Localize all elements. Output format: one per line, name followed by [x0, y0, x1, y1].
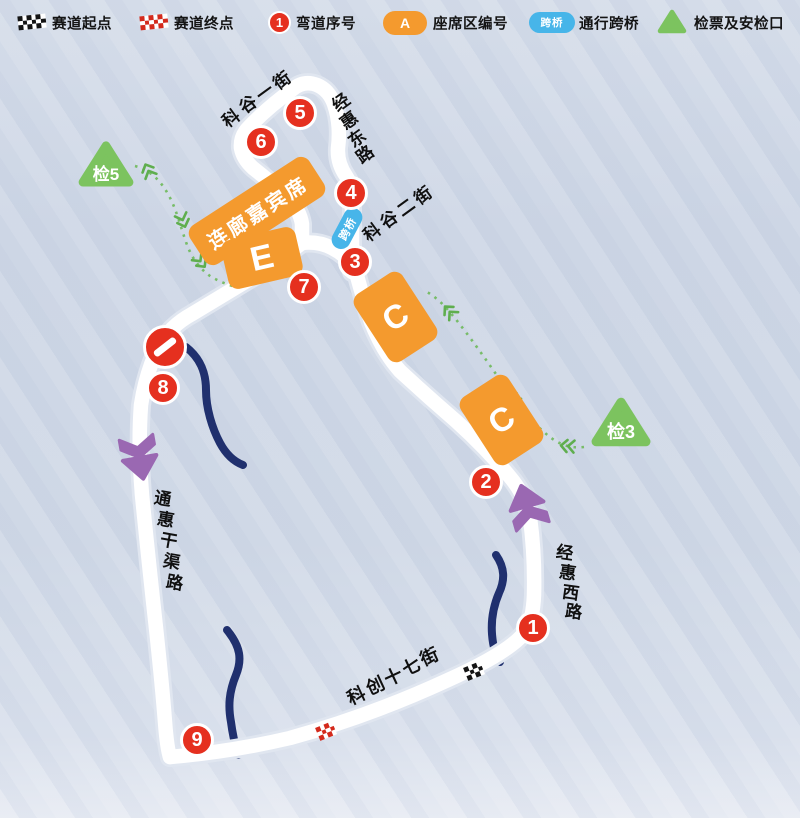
corner-marker-9: 9 — [180, 723, 214, 757]
street-label-jinghui-west: 路 — [564, 596, 584, 623]
corner-marker-1: 1 — [516, 611, 550, 645]
legend-item-bridge-label: 通行跨桥 — [579, 13, 639, 34]
course-map-canvas — [0, 0, 800, 818]
checkered-flag-black-icon — [17, 14, 46, 31]
corner-marker-5: 5 — [283, 96, 317, 130]
walk-direction-arrow — [441, 303, 459, 321]
checkpoint-jian5-triangle: 检5 — [77, 140, 135, 188]
checkpoint-jian5-label: 检5 — [77, 160, 135, 185]
checkpoint-jian3-triangle: 检3 — [590, 396, 652, 448]
walk-direction-arrow — [140, 162, 156, 179]
legend-item-checkpoint-label: 检票及安检口 — [694, 13, 784, 34]
corner-number-badge-icon: 1 — [268, 11, 291, 34]
corner-marker-6: 6 — [244, 125, 278, 159]
race-track-road-east-segment — [170, 243, 534, 757]
race-course-map: 赛道起点赛道终点1弯道序号A座席区编号跨桥通行跨桥 检票及安检口 连廊嘉宾席EC… — [0, 0, 800, 818]
corner-marker-2: 2 — [469, 465, 503, 499]
legend-item-corner-label: 弯道序号 — [296, 13, 356, 34]
checkpoint-triangle-icon — [657, 8, 687, 35]
corner-marker-7: 7 — [287, 270, 321, 304]
corner-marker-4: 4 — [334, 176, 368, 210]
bridge-badge-icon: 跨桥 — [529, 12, 575, 33]
checkpoint-jian3-label: 检3 — [590, 418, 652, 444]
legend-item-seat-label: 座席区编号 — [433, 13, 508, 34]
checkered-flag-red-icon — [139, 14, 168, 31]
no-entry-sign — [143, 325, 187, 369]
legend-item-start-label: 赛道起点 — [52, 13, 112, 34]
no-entry-bar-icon — [153, 336, 178, 358]
legend-bar: 赛道起点赛道终点1弯道序号A座席区编号跨桥通行跨桥 检票及安检口 — [0, 0, 800, 46]
seat-area-badge-icon: A — [383, 11, 427, 35]
corner-marker-3: 3 — [338, 245, 372, 279]
walk-direction-arrow — [560, 439, 574, 452]
walk-direction-arrow — [175, 212, 191, 228]
river-segment-west — [186, 347, 243, 465]
legend-item-finish-label: 赛道终点 — [174, 13, 234, 34]
corner-marker-8: 8 — [146, 371, 180, 405]
route-direction-arrow-icon — [115, 429, 163, 485]
river-segment-south — [227, 630, 239, 755]
